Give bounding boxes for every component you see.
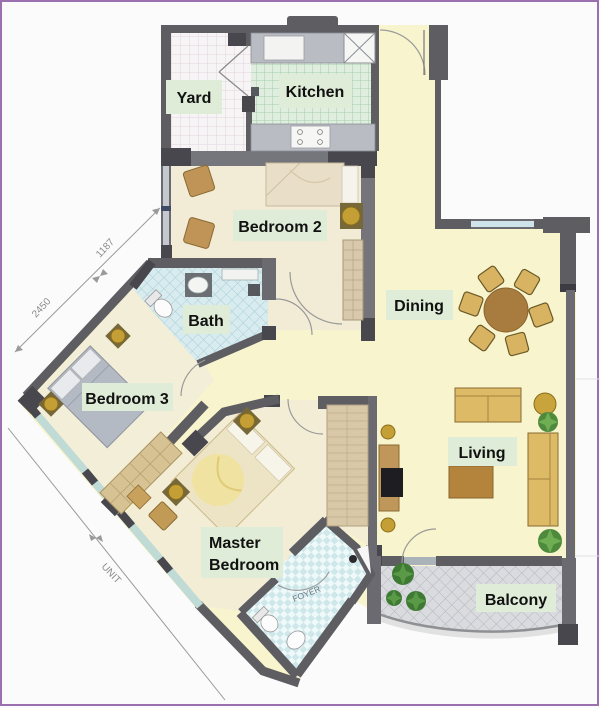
svg-text:Yard: Yard — [177, 90, 212, 107]
svg-text:Bedroom: Bedroom — [209, 557, 279, 574]
svg-text:Bath: Bath — [188, 313, 224, 330]
svg-text:Bedroom 2: Bedroom 2 — [238, 219, 322, 236]
svg-text:Dining: Dining — [394, 298, 444, 315]
svg-text:Living: Living — [458, 445, 505, 462]
svg-text:Master: Master — [209, 535, 261, 552]
svg-text:Balcony: Balcony — [485, 592, 547, 609]
svg-text:Kitchen: Kitchen — [286, 84, 345, 101]
svg-text:Bedroom 3: Bedroom 3 — [85, 391, 169, 408]
